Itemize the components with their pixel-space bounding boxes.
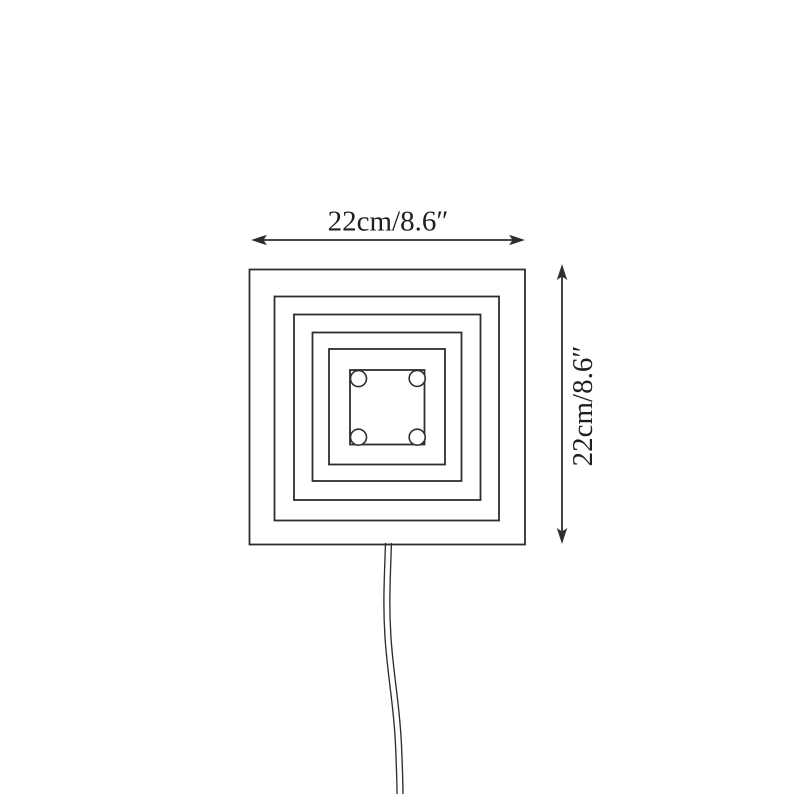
- lamp-frame-square-5: [329, 349, 445, 465]
- mounting-screw-bottom-left: [351, 429, 367, 445]
- lamp-dimension-diagram: 22cm/8.6″ 22cm/8.6″: [0, 0, 800, 800]
- mounting-screw-bottom-right: [409, 429, 425, 445]
- width-dimension-label: 22cm/8.6″: [328, 206, 449, 238]
- mounting-screws: [351, 370, 426, 445]
- lamp-frame-squares: [250, 270, 526, 545]
- height-dimension: 22cm/8.6″: [557, 264, 599, 544]
- lamp-frame-square-3: [294, 315, 481, 501]
- dimension-diagram-page: 22cm/8.6″ 22cm/8.6″: [0, 0, 800, 800]
- mounting-screw-top-left: [351, 371, 367, 387]
- height-dimension-label: 22cm/8.6″: [567, 346, 599, 467]
- lamp-frame-square-2: [275, 297, 500, 521]
- mounting-screw-top-right: [409, 370, 425, 386]
- power-cord: [387, 543, 400, 797]
- lamp-frame-square-1: [250, 270, 526, 545]
- width-dimension: 22cm/8.6″: [251, 206, 525, 246]
- lamp-frame-square-4: [313, 333, 462, 482]
